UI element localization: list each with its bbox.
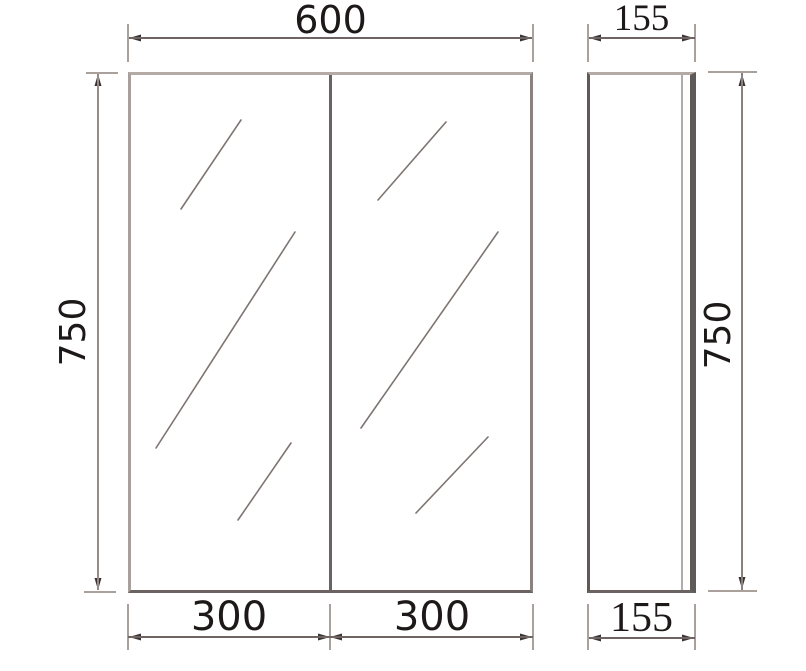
dim-label-side-height: 750 bbox=[701, 301, 737, 370]
extension-line bbox=[84, 591, 116, 593]
dim-label-side-depth-top: 155 bbox=[587, 0, 696, 37]
dim-label-left-door-width: 300 bbox=[128, 597, 330, 637]
extension-line bbox=[708, 71, 757, 73]
dim-line-side-height bbox=[741, 73, 743, 590]
side-view-door-gap-line bbox=[681, 75, 683, 590]
dim-label-right-door-width: 300 bbox=[331, 597, 533, 637]
dim-label-front-width: 600 bbox=[128, 1, 533, 39]
dim-label-front-height: 750 bbox=[56, 298, 92, 367]
front-view-door-divider bbox=[329, 75, 332, 590]
extension-line bbox=[86, 72, 118, 74]
side-view-outline bbox=[587, 72, 696, 593]
technical-drawing-canvas: 600 155 750 750 300 300 155 bbox=[0, 0, 806, 671]
dim-line-front-height bbox=[97, 74, 99, 590]
extension-line bbox=[708, 590, 757, 592]
dim-label-side-depth-bottom: 155 bbox=[587, 597, 696, 639]
